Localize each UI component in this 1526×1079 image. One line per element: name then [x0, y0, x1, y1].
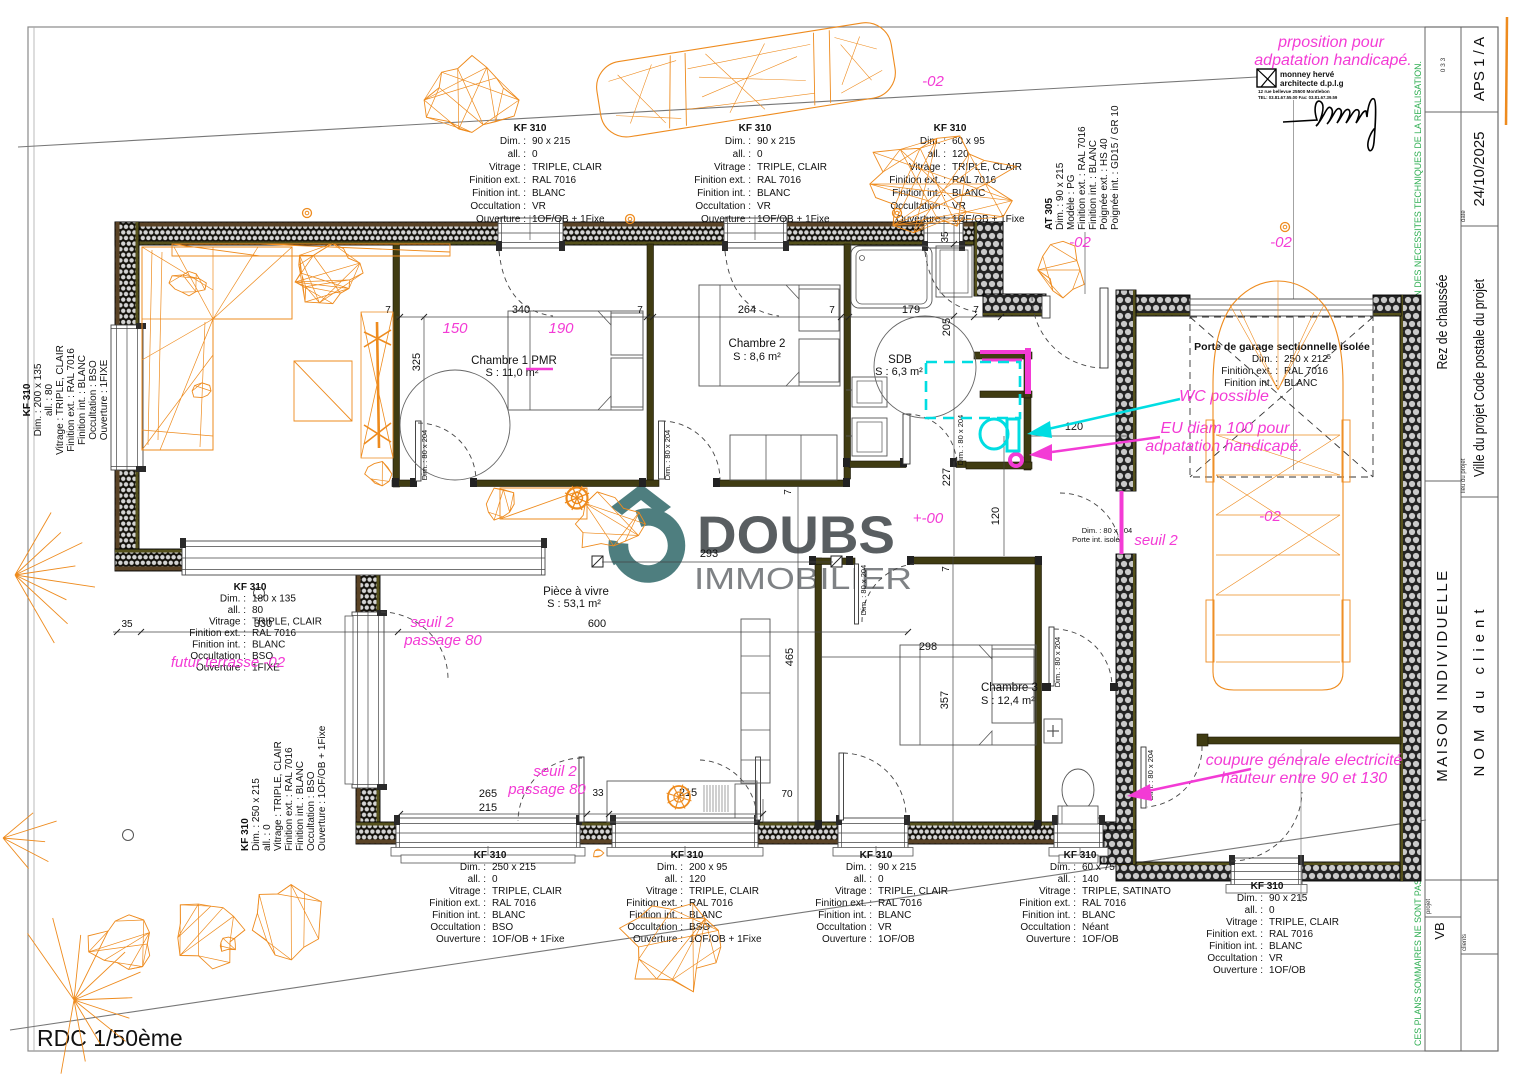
svg-text:+-00: +-00: [913, 510, 944, 527]
svg-text:Modèle : PG: Modèle : PG: [1066, 174, 1077, 230]
svg-text:Ouverture :: Ouverture :: [436, 934, 486, 945]
svg-text:TRIPLE, CLAIR: TRIPLE, CLAIR: [689, 886, 759, 897]
svg-text:VR: VR: [878, 922, 892, 933]
svg-text:all. :: all. :: [228, 605, 246, 616]
svg-text:Finition int. :: Finition int. :: [697, 188, 751, 199]
svg-text:Vitrage :: Vitrage :: [835, 886, 872, 897]
svg-text:7: 7: [637, 305, 643, 316]
svg-text:Dim. :: Dim. :: [1252, 354, 1278, 365]
svg-text:VR: VR: [1269, 953, 1283, 964]
svg-text:Néant: Néant: [1082, 922, 1109, 933]
svg-text:Occultation :: Occultation :: [816, 922, 872, 933]
svg-text:Ouverture :: Ouverture :: [476, 214, 526, 225]
svg-text:Dim. : 80 x 204: Dim. : 80 x 204: [859, 565, 868, 615]
svg-text:RAL 7016: RAL 7016: [1269, 929, 1314, 940]
svg-text:7: 7: [1116, 741, 1127, 747]
svg-text:120: 120: [952, 149, 969, 160]
svg-text:adpatation handicapé.: adpatation handicapé.: [1254, 52, 1411, 69]
svg-text:Chambre 2: Chambre 2: [729, 338, 786, 350]
svg-text:Vitrage : TRIPLE, CLAIR: Vitrage : TRIPLE, CLAIR: [273, 741, 284, 851]
svg-text:seuil 2: seuil 2: [410, 614, 454, 631]
svg-text:TRIPLE, CLAIR: TRIPLE, CLAIR: [532, 162, 602, 173]
svg-text:Vitrage :: Vitrage :: [489, 162, 526, 173]
svg-text:TRIPLE, CLAIR: TRIPLE, CLAIR: [252, 617, 322, 628]
svg-text:all. :: all. :: [1058, 874, 1076, 885]
svg-text:1OF/OB: 1OF/OB: [1269, 965, 1306, 976]
svg-text:TRIPLE, CLAIR: TRIPLE, CLAIR: [878, 886, 948, 897]
svg-text:Pièce à vivre: Pièce à vivre: [543, 586, 609, 598]
svg-text:KF 310: KF 310: [234, 582, 267, 593]
svg-text:Occultation :: Occultation :: [470, 201, 526, 212]
svg-text:-02: -02: [1069, 234, 1091, 251]
svg-text:all. : 80: all. : 80: [44, 383, 55, 416]
svg-text:Dim. :: Dim. :: [460, 862, 486, 873]
svg-text:Finition int. :: Finition int. :: [1209, 941, 1263, 952]
svg-text:Rez de chaussée: Rez de chaussée: [1434, 275, 1451, 370]
svg-text:TRIPLE, SATINATO: TRIPLE, SATINATO: [1082, 886, 1171, 897]
svg-text:KF 310: KF 310: [514, 123, 547, 134]
svg-text:-02: -02: [922, 73, 944, 90]
svg-text:Finition int. : BLANC: Finition int. : BLANC: [77, 355, 88, 445]
svg-text:35: 35: [940, 231, 951, 243]
svg-text:S : 6,3 m²: S : 6,3 m²: [875, 366, 923, 378]
svg-text:0: 0: [492, 874, 498, 885]
svg-text:Chambre 3: Chambre 3: [981, 682, 1038, 694]
svg-text:APS 1 / A: APS 1 / A: [1471, 37, 1488, 101]
svg-text:KF 310: KF 310: [934, 123, 967, 134]
svg-text:Dim. : 80 x 204: Dim. : 80 x 204: [956, 415, 965, 465]
svg-text:80: 80: [252, 605, 264, 616]
svg-text:Occultation :: Occultation :: [1207, 953, 1263, 964]
svg-text:600: 600: [588, 618, 606, 630]
svg-text:BLANC: BLANC: [1269, 941, 1302, 952]
svg-text:Finition int. :: Finition int. :: [192, 640, 246, 651]
svg-text:all. :: all. :: [665, 874, 683, 885]
svg-text:Ouverture :: Ouverture :: [701, 214, 751, 225]
svg-text:Finition int. :: Finition int. :: [818, 910, 872, 921]
svg-text:-02: -02: [1259, 508, 1281, 525]
svg-text:Finition ext. :: Finition ext. :: [1206, 929, 1263, 940]
svg-text:Vitrage :: Vitrage :: [449, 886, 486, 897]
svg-text:250 x 215: 250 x 215: [492, 862, 536, 873]
svg-text:Occultation :: Occultation :: [430, 922, 486, 933]
svg-text:passage 80: passage 80: [403, 632, 482, 649]
svg-text:KF 310: KF 310: [22, 383, 33, 416]
svg-text:5: 5: [1327, 354, 1331, 361]
svg-text:VR: VR: [757, 201, 771, 212]
svg-text:325: 325: [411, 353, 423, 371]
svg-text:Finition int. :: Finition int. :: [432, 910, 486, 921]
svg-text:BLANC: BLANC: [757, 188, 790, 199]
svg-text:7: 7: [385, 305, 391, 316]
svg-text:340: 340: [512, 304, 530, 316]
svg-text:Finition ext. :: Finition ext. :: [694, 175, 751, 186]
svg-text:BSO: BSO: [492, 922, 513, 933]
svg-text:Finition int. :: Finition int. :: [629, 910, 683, 921]
svg-text:Vitrage :: Vitrage :: [714, 162, 751, 173]
svg-text:Porte int. isolée: Porte int. isolée: [1072, 535, 1124, 544]
svg-text:Ouverture :: Ouverture :: [822, 934, 872, 945]
svg-text:date: date: [1461, 210, 1467, 222]
svg-text:RAL 7016: RAL 7016: [878, 898, 923, 909]
svg-text:KF 310: KF 310: [1064, 850, 1097, 861]
svg-text:SDB: SDB: [888, 354, 912, 366]
svg-text:33: 33: [592, 788, 604, 799]
svg-text:1OF/OB + 1Fixe: 1OF/OB + 1Fixe: [952, 214, 1025, 225]
svg-text:0: 0: [878, 874, 884, 885]
svg-text:Vitrage :: Vitrage :: [209, 617, 246, 628]
svg-text:VR: VR: [532, 201, 546, 212]
svg-text:Finition int. :: Finition int. :: [472, 188, 526, 199]
svg-text:Dim. : 80 x 204: Dim. : 80 x 204: [420, 430, 429, 480]
svg-text:Occultation :: Occultation :: [890, 201, 946, 212]
svg-text:35: 35: [121, 619, 133, 630]
svg-text:TRIPLE, CLAIR: TRIPLE, CLAIR: [757, 162, 827, 173]
svg-text:Ville du projet Code postale d: Ville du projet Code postale du projet: [1471, 278, 1488, 477]
svg-text:179: 179: [902, 304, 920, 316]
svg-text:BLANC: BLANC: [252, 640, 285, 651]
svg-text:Finition int. : BLANC: Finition int. : BLANC: [295, 761, 306, 851]
svg-text:IMMOBILIER: IMMOBILIER: [694, 561, 912, 596]
svg-text:357: 357: [939, 691, 951, 709]
svg-text:120: 120: [689, 874, 706, 885]
svg-text:RAL 7016: RAL 7016: [252, 628, 297, 639]
svg-text:VR: VR: [952, 201, 966, 212]
svg-text:293: 293: [700, 548, 718, 560]
svg-text:Poignée int. : GD15 / GR 10: Poignée int. : GD15 / GR 10: [1110, 105, 1121, 230]
svg-text:all. :: all. :: [733, 149, 751, 160]
svg-text:Dim. :: Dim. :: [220, 594, 246, 605]
svg-text:Dim. : 80 x 204: Dim. : 80 x 204: [1082, 526, 1132, 535]
svg-text:Dim. : 80 x 204: Dim. : 80 x 204: [1053, 637, 1062, 687]
svg-text:264: 264: [738, 304, 756, 316]
svg-text:S : 8,6 m²: S : 8,6 m²: [733, 351, 781, 363]
svg-text:150: 150: [442, 320, 468, 337]
svg-text:EU diam 100 pour: EU diam 100 pour: [1161, 420, 1291, 437]
svg-text:Dim. : 80 x 204: Dim. : 80 x 204: [663, 430, 672, 480]
svg-text:1OF/OB + 1Fixe: 1OF/OB + 1Fixe: [532, 214, 605, 225]
svg-text:all. :: all. :: [468, 874, 486, 885]
svg-text:298: 298: [919, 641, 937, 653]
svg-text:Finition ext. : RAL 7016: Finition ext. : RAL 7016: [284, 747, 295, 851]
svg-text:AT 305: AT 305: [1044, 198, 1055, 230]
svg-text:7: 7: [973, 305, 979, 316]
svg-text:Finition int. : BLANC: Finition int. : BLANC: [1088, 140, 1099, 230]
svg-text:hauteur entre 90 et 130: hauteur entre 90 et 130: [1221, 770, 1387, 787]
svg-text:TEL: 03.81.67.55.00 Fax: 03.: TEL: 03.81.67.55.00 Fax: 03.81.67.39.59: [1258, 95, 1338, 100]
svg-text:227: 227: [941, 468, 953, 486]
svg-text:Poignée ext. : HS 40: Poignée ext. : HS 40: [1099, 138, 1110, 230]
svg-text:Dim. : 250 x 215: Dim. : 250 x 215: [251, 778, 262, 851]
svg-text:VB: VB: [1432, 922, 1447, 939]
svg-text:1OF/OB + 1Fixe: 1OF/OB + 1Fixe: [757, 214, 830, 225]
svg-text:Ouverture :: Ouverture :: [1026, 934, 1076, 945]
svg-text:S : 12,4 m²: S : 12,4 m²: [981, 695, 1035, 707]
svg-text:Dim. :: Dim. :: [500, 136, 526, 147]
svg-text:KF 310: KF 310: [474, 850, 507, 861]
svg-text:Finition ext. :: Finition ext. :: [626, 898, 683, 909]
svg-text:1OF/OB + 1Fixe: 1OF/OB + 1Fixe: [689, 934, 762, 945]
svg-text:190: 190: [548, 320, 574, 337]
svg-text:passage 80: passage 80: [507, 781, 586, 798]
svg-text:BLANC: BLANC: [1082, 910, 1115, 921]
svg-text:BLANC: BLANC: [1284, 378, 1317, 389]
svg-text:1OF/OB: 1OF/OB: [878, 934, 915, 945]
svg-text:all. :: all. :: [854, 874, 872, 885]
svg-text:KF 310: KF 310: [240, 818, 251, 851]
svg-text:Occultation : BSO: Occultation : BSO: [88, 360, 99, 440]
svg-text:24/10/2025: 24/10/2025: [1471, 131, 1488, 206]
svg-text:140: 140: [1082, 874, 1099, 885]
svg-text:architecte d.p.l.g: architecte d.p.l.g: [1280, 79, 1344, 88]
svg-text:90 x 215: 90 x 215: [757, 136, 796, 147]
svg-text:all. :: all. :: [1245, 905, 1263, 916]
svg-text:Vitrage :: Vitrage :: [646, 886, 683, 897]
svg-text:all. : 0: all. : 0: [262, 824, 273, 851]
svg-text:Occultation :: Occultation :: [695, 201, 751, 212]
svg-text:Finition ext. : RAL 7016: Finition ext. : RAL 7016: [1077, 126, 1088, 230]
svg-text:Dim. : 90 x 215: Dim. : 90 x 215: [1055, 162, 1066, 230]
svg-text:RAL 7016: RAL 7016: [532, 175, 577, 186]
svg-text:1OF/OB: 1OF/OB: [1082, 934, 1119, 945]
svg-text:clients: clients: [1462, 934, 1468, 951]
svg-text:250 x 212: 250 x 212: [1284, 354, 1328, 365]
svg-text:Finition ext. :: Finition ext. :: [469, 175, 526, 186]
svg-text:DOUBS: DOUBS: [697, 506, 895, 565]
svg-text:prposition pour: prposition pour: [1277, 34, 1385, 51]
svg-text:futur terrasse -02: futur terrasse -02: [171, 654, 286, 671]
svg-text:0: 0: [757, 149, 763, 160]
svg-text:Vitrage : TRIPLE, CLAIR: Vitrage : TRIPLE, CLAIR: [55, 345, 66, 455]
svg-text:seuil 2: seuil 2: [1134, 532, 1178, 549]
svg-text:KF 310: KF 310: [739, 123, 772, 134]
svg-text:Finition ext. : RAL 7016: Finition ext. : RAL 7016: [66, 348, 77, 452]
svg-text:RAL 7016: RAL 7016: [757, 175, 802, 186]
svg-text:BLANC: BLANC: [492, 910, 525, 921]
svg-text:0: 0: [1269, 905, 1275, 916]
svg-text:Dim. :: Dim. :: [1237, 893, 1263, 904]
svg-text:60 x 75: 60 x 75: [1082, 862, 1115, 873]
svg-text:12 rue bellevue 25500 Montleb: 12 rue bellevue 25500 Montlebon: [1258, 89, 1330, 94]
svg-text:7: 7: [941, 566, 952, 572]
svg-text:KF 310: KF 310: [671, 850, 704, 861]
svg-text:Vitrage :: Vitrage :: [1226, 917, 1263, 928]
svg-text:NOM du client: NOM du client: [1471, 603, 1488, 776]
svg-text:120: 120: [990, 507, 1002, 525]
svg-text:lieu du projet: lieu du projet: [1461, 458, 1467, 493]
svg-text:Occultation : BSO: Occultation : BSO: [306, 771, 317, 851]
svg-text:90 x 215: 90 x 215: [1269, 893, 1308, 904]
svg-text:RAL 7016: RAL 7016: [492, 898, 537, 909]
svg-text:TRIPLE, CLAIR: TRIPLE, CLAIR: [492, 886, 562, 897]
svg-text:monney hervé: monney hervé: [1280, 70, 1335, 79]
svg-text:seuil 2: seuil 2: [533, 763, 577, 780]
svg-text:RAL 7016: RAL 7016: [1082, 898, 1127, 909]
svg-text:90 x 215: 90 x 215: [878, 862, 917, 873]
svg-text:MAISON INDIVIDUELLE: MAISON INDIVIDUELLE: [1434, 568, 1451, 781]
svg-text:all. :: all. :: [508, 149, 526, 160]
svg-text:WC possible: WC possible: [1179, 388, 1269, 405]
svg-text:Finition int. :: Finition int. :: [1022, 910, 1076, 921]
svg-text:Dim. :: Dim. :: [657, 862, 683, 873]
svg-text:Vitrage :: Vitrage :: [1039, 886, 1076, 897]
svg-text:0 3 3: 0 3 3: [1440, 57, 1447, 72]
svg-text:Dim. :: Dim. :: [725, 136, 751, 147]
svg-text:KF 310: KF 310: [860, 850, 893, 861]
svg-text:0: 0: [532, 149, 538, 160]
svg-text:BLANC: BLANC: [878, 910, 911, 921]
svg-text:200 x 95: 200 x 95: [689, 862, 728, 873]
svg-text:projet: projet: [1426, 899, 1432, 914]
svg-text:205: 205: [941, 318, 953, 336]
svg-text:465: 465: [784, 648, 796, 666]
svg-text:Occultation :: Occultation :: [627, 922, 683, 933]
svg-text:Ouverture : 1FIXE: Ouverture : 1FIXE: [99, 359, 110, 440]
svg-text:Chambre 1 PMR: Chambre 1 PMR: [471, 355, 557, 367]
svg-text:KF 310: KF 310: [1251, 881, 1284, 892]
svg-text:70: 70: [781, 789, 793, 800]
svg-text:Finition ext. :: Finition ext. :: [815, 898, 872, 909]
svg-text:215: 215: [479, 802, 497, 814]
svg-text:S : 53,1 m²: S : 53,1 m²: [547, 598, 601, 610]
svg-text:265: 265: [479, 788, 497, 800]
svg-text:1OF/OB + 1Fixe: 1OF/OB + 1Fixe: [492, 934, 565, 945]
svg-text:TRIPLE, CLAIR: TRIPLE, CLAIR: [1269, 917, 1339, 928]
svg-text:Ouverture : 1OF/OB + 1Fixe: Ouverture : 1OF/OB + 1Fixe: [317, 725, 328, 851]
svg-text:adpatation handicapé.: adpatation handicapé.: [1145, 438, 1302, 455]
svg-text:90 x 215: 90 x 215: [532, 136, 571, 147]
svg-text:7: 7: [829, 305, 835, 316]
svg-text:Finition ext. :: Finition ext. :: [429, 898, 486, 909]
svg-text:7: 7: [783, 489, 794, 495]
svg-text:BLANC: BLANC: [532, 188, 565, 199]
svg-text:Dim. :: Dim. :: [1050, 862, 1076, 873]
svg-text:coupure génerale electricité: coupure génerale electricité: [1206, 752, 1403, 769]
svg-text:Dim. : 200 x 135: Dim. : 200 x 135: [33, 363, 44, 436]
svg-text:Ouverture :: Ouverture :: [1213, 965, 1263, 976]
svg-text:Finition ext. :: Finition ext. :: [1019, 898, 1076, 909]
svg-text:Occultation :: Occultation :: [1020, 922, 1076, 933]
svg-text:60 x 95: 60 x 95: [952, 136, 985, 147]
svg-text:-02: -02: [1270, 234, 1292, 251]
svg-text:Finition ext. :: Finition ext. :: [189, 628, 246, 639]
svg-text:Dim. :: Dim. :: [846, 862, 872, 873]
svg-text:180 x 135: 180 x 135: [252, 594, 296, 605]
